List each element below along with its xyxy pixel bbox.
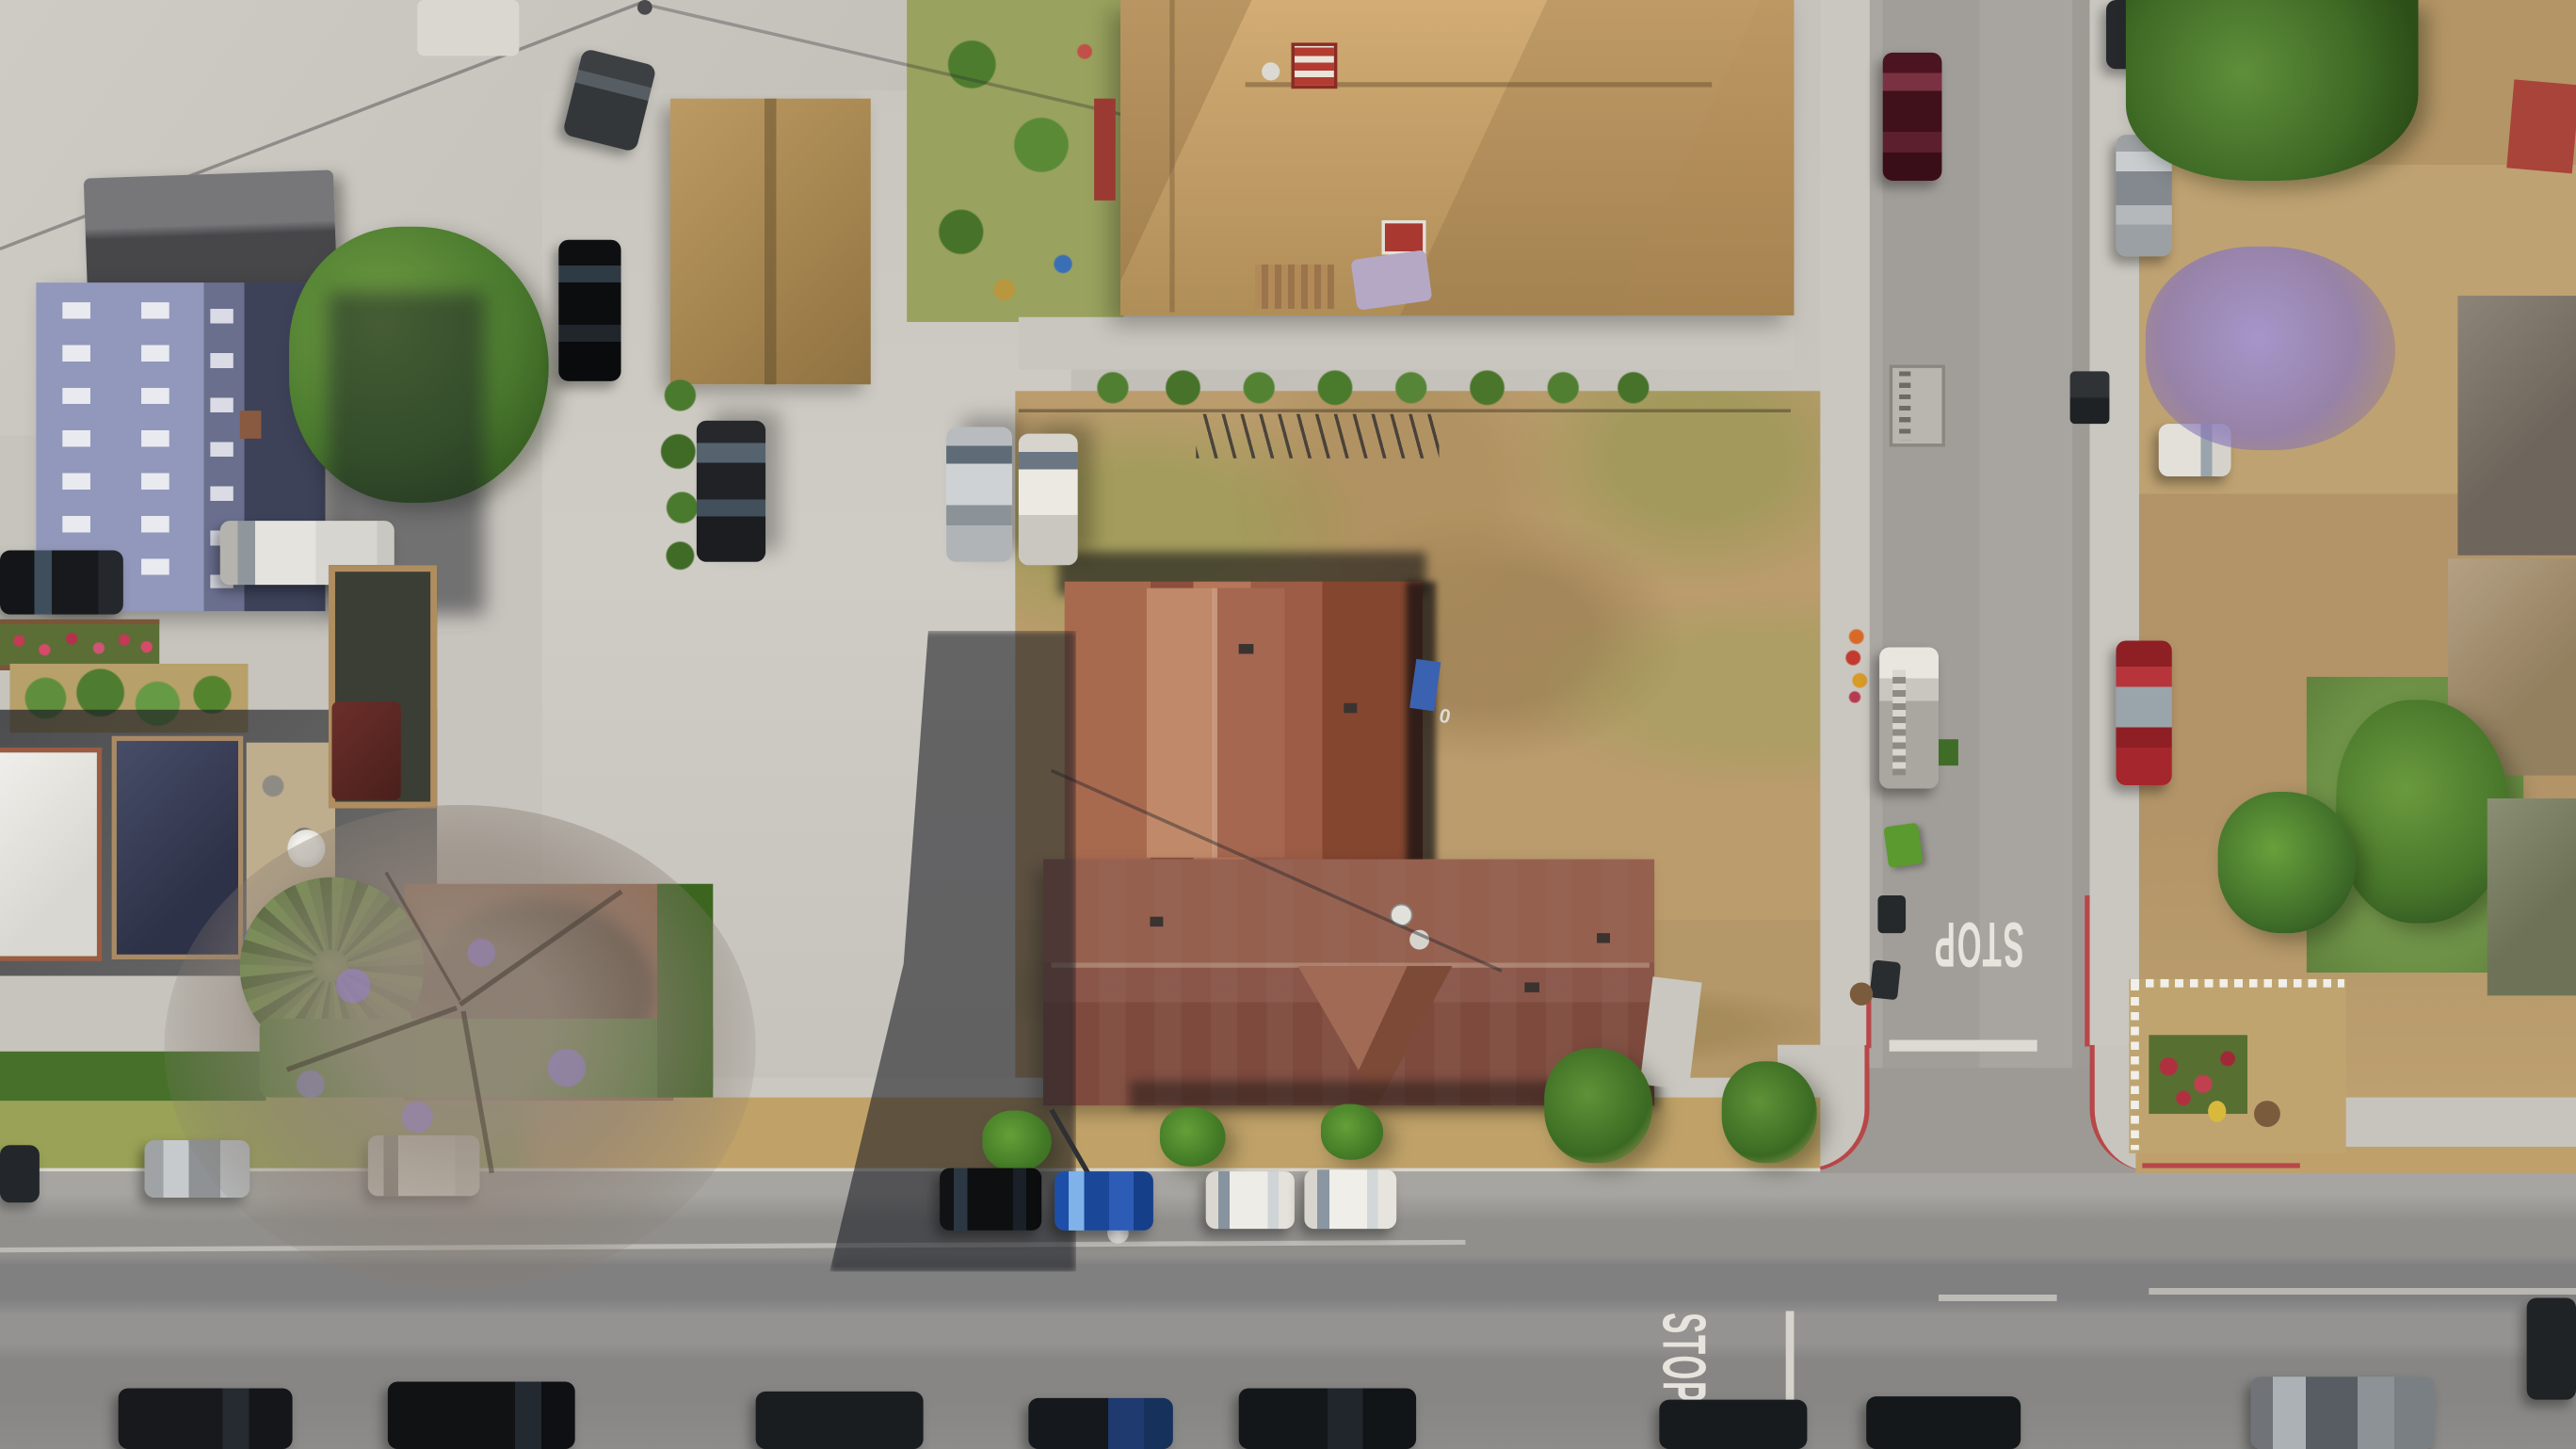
parked-car-bottom [756,1392,924,1449]
roof-vent [1344,703,1357,713]
chimney [240,411,262,439]
satellite-dish [1262,62,1280,80]
parked-car-bottom [119,1388,293,1449]
green-bin [1883,823,1923,868]
fence-line [1019,409,1791,411]
tan-house-small [670,99,871,385]
picket-fence [2131,979,2344,988]
apartment-windows [62,302,90,591]
curb-number: 0 [1430,700,1461,732]
shed-bottom-right [2487,798,2576,995]
parked-car-edge [2527,1297,2576,1399]
rear-gable-ridge [1213,588,1217,858]
dark-suv [0,551,123,615]
hedge-row [1078,364,1663,411]
white-sedan [1206,1171,1295,1229]
parkway-bush [1321,1104,1383,1160]
red-wall-edge [1094,99,1116,201]
silver-suv [946,427,1012,562]
bicycles [1196,414,1439,459]
drone-photo-viewport: STOPSTOP0 [0,0,2576,1449]
parkway-bush [1160,1107,1226,1167]
flower-bed [0,620,159,670]
stop-road-marking-north: STOP [1948,865,2023,1013]
parked-car-bottom [1028,1398,1173,1449]
red-pickup [2116,641,2171,786]
stop-line [1890,1040,2037,1052]
driveway-shrubs [660,371,700,572]
gray-suv-bottom [2251,1377,2435,1449]
walkway-band [1019,317,1795,370]
white-sedan [1304,1169,1396,1229]
red-curb [2085,895,2089,1047]
chimney-striped [1291,42,1337,89]
lavender-blanket [1350,250,1432,311]
white-suv [1019,434,1078,566]
apartment-windows [141,302,169,591]
top-garden-strip [907,0,1123,322]
parked-car-bottom [1239,1388,1416,1449]
carport-roof [84,169,337,290]
utility-pole [637,0,652,15]
lane-dash [1939,1295,2057,1301]
black-suv-street [940,1168,1041,1231]
utility-truck [1879,647,1939,788]
dark-van [388,1381,575,1449]
green-bin-small [1939,739,1958,765]
trash-bin [1869,959,1901,1000]
rose-bushes [2149,1035,2247,1114]
corner-tree [2218,792,2357,933]
manhole-cover [1850,982,1873,1005]
red-curb [2142,1163,2300,1167]
white-trailer [417,0,519,56]
gray-sedan [697,421,765,562]
parkway-bush [982,1111,1051,1172]
manhole-cover [2254,1101,2280,1127]
porch-deck [1255,265,1334,309]
aerial-scene: STOPSTOP0 [0,0,2576,1449]
jacaranda-blooms [247,887,674,1216]
trash-bin [1877,895,1906,933]
picket-fence [2131,982,2139,1150]
house-right-top [2457,296,2576,555]
truck-ladder [1892,670,1906,776]
roof-vent [1524,982,1539,991]
roadside-clutter [1840,628,1873,703]
stop-road-marking-west: STOP [1605,1312,1753,1392]
white-roof-building [0,748,102,961]
fire-hydrant [2208,1101,2226,1122]
roof-vent [1150,917,1163,926]
parkway-tree [1544,1048,1652,1163]
parkway-tree [1722,1061,1817,1163]
roof-vent [1239,644,1254,653]
roof-vent [1597,933,1610,942]
red-structure [2506,79,2576,173]
roof-ridge [1169,0,1174,313]
sidewalk-left [1820,0,1869,1065]
lane-line [2149,1288,2576,1295]
blue-car [1055,1171,1153,1231]
parked-car-bottom [1866,1396,2021,1449]
tarp-canopy [331,701,400,800]
tree-right-mid [2336,700,2510,923]
main-house-roof [1120,0,1794,315]
trees-top-right [2126,0,2419,181]
jacaranda-tree-purple [2146,247,2395,450]
trash-bins [2070,371,2110,424]
maroon-suv [1883,53,1942,181]
ladder-trailer [1890,364,1945,446]
pickup-edge [0,1145,40,1202]
parked-car-bottom [1659,1400,1807,1449]
black-car [558,240,620,381]
trailer-ladder [1899,371,1910,440]
